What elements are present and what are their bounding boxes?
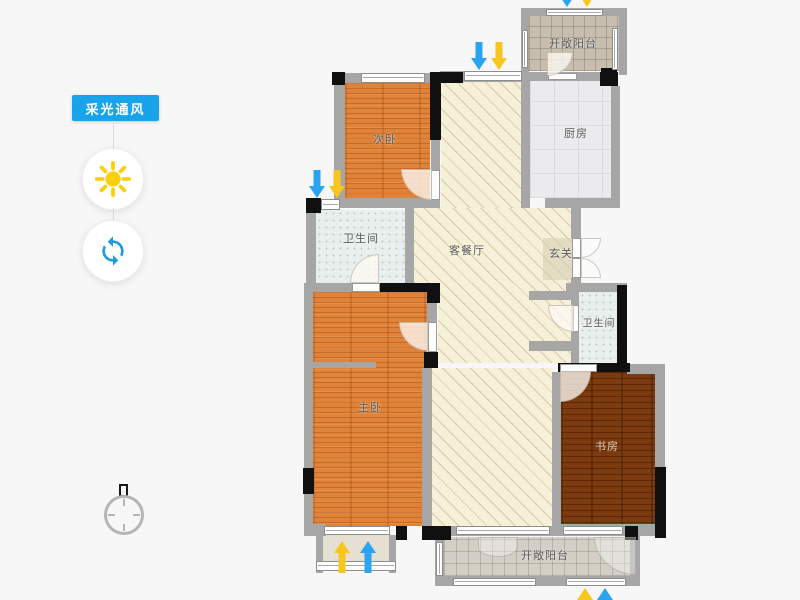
room-label-living-dining: 客餐厅: [449, 242, 485, 258]
wall-segment: [304, 292, 313, 533]
window: [563, 526, 623, 535]
wall-segment: [529, 291, 571, 300]
wall-segment: [334, 198, 440, 208]
window: [566, 578, 626, 586]
wall-segment: [424, 352, 438, 368]
room-label-entry: 玄关: [549, 245, 573, 261]
wall-segment: [303, 468, 314, 494]
room-label-bathroom-lower: 卫生间: [583, 315, 616, 330]
wall-segment: [617, 285, 627, 371]
window: [522, 30, 528, 68]
door-leaf: [572, 258, 581, 278]
door-swing-arc: [478, 537, 518, 557]
door-leaf: [352, 283, 380, 292]
room-label-master-bedroom: 主卧: [358, 399, 382, 415]
wall-segment: [405, 208, 414, 285]
wall-segment: [521, 81, 530, 208]
light-arrow-icon: [329, 170, 345, 198]
wall-segment: [619, 8, 627, 75]
wall-segment: [545, 198, 620, 208]
wall-segment: [655, 364, 665, 467]
window: [612, 28, 618, 70]
wind-arrow-icon: [597, 588, 613, 600]
wind-arrow-icon: [359, 541, 377, 573]
window: [436, 542, 443, 576]
light-arrow-icon: [577, 588, 593, 600]
wall-segment: [627, 364, 658, 374]
light-arrow-icon: [579, 0, 595, 7]
wall-segment: [422, 368, 432, 528]
window: [546, 9, 603, 16]
wall-segment: [313, 362, 376, 368]
wall-segment: [306, 213, 316, 283]
wall-segment: [440, 72, 463, 83]
room-label-balcony-top: 开敞阳台: [549, 35, 597, 51]
floor-plan: 次卧 厨房 开敞阳台 卫生间 客餐厅 玄关 卫生间 主卧 书房 开敞阳台: [0, 0, 800, 600]
window: [464, 71, 522, 81]
floor-plan-app: 采光通风: [0, 0, 800, 600]
wall-segment: [396, 526, 407, 540]
room-label-balcony-bottom: 开敞阳台: [521, 547, 569, 563]
window: [316, 561, 396, 571]
wall-segment: [427, 283, 440, 303]
wall-segment: [306, 198, 321, 213]
wall-segment: [332, 72, 345, 85]
wind-arrow-icon: [559, 0, 575, 7]
door-leaf: [572, 238, 581, 258]
room-living-dining-floor: [432, 368, 552, 528]
room-label-kitchen: 厨房: [564, 125, 588, 141]
window: [456, 526, 550, 535]
door-leaf: [431, 170, 440, 200]
wall-segment: [655, 467, 666, 538]
door-swing-arc: [581, 258, 601, 278]
room-label-secondary-bedroom: 次卧: [373, 131, 397, 147]
wall-segment: [611, 86, 620, 202]
wind-arrow-icon: [471, 42, 487, 70]
window: [453, 578, 536, 586]
wall-segment: [422, 526, 451, 540]
light-arrow-icon: [333, 541, 351, 573]
room-label-study: 书房: [595, 438, 619, 454]
wall-segment: [571, 208, 581, 238]
room-living-dining-floor: [441, 82, 521, 208]
window: [324, 526, 390, 535]
room-label-bathroom-upper: 卫生间: [343, 230, 379, 246]
light-arrow-icon: [491, 42, 507, 70]
wall-segment: [431, 140, 440, 170]
wall-segment: [529, 341, 571, 351]
wind-arrow-icon: [309, 170, 325, 198]
door-swing-arc: [581, 238, 601, 258]
door-leaf: [428, 322, 437, 352]
window: [361, 73, 425, 83]
window: [321, 199, 340, 210]
